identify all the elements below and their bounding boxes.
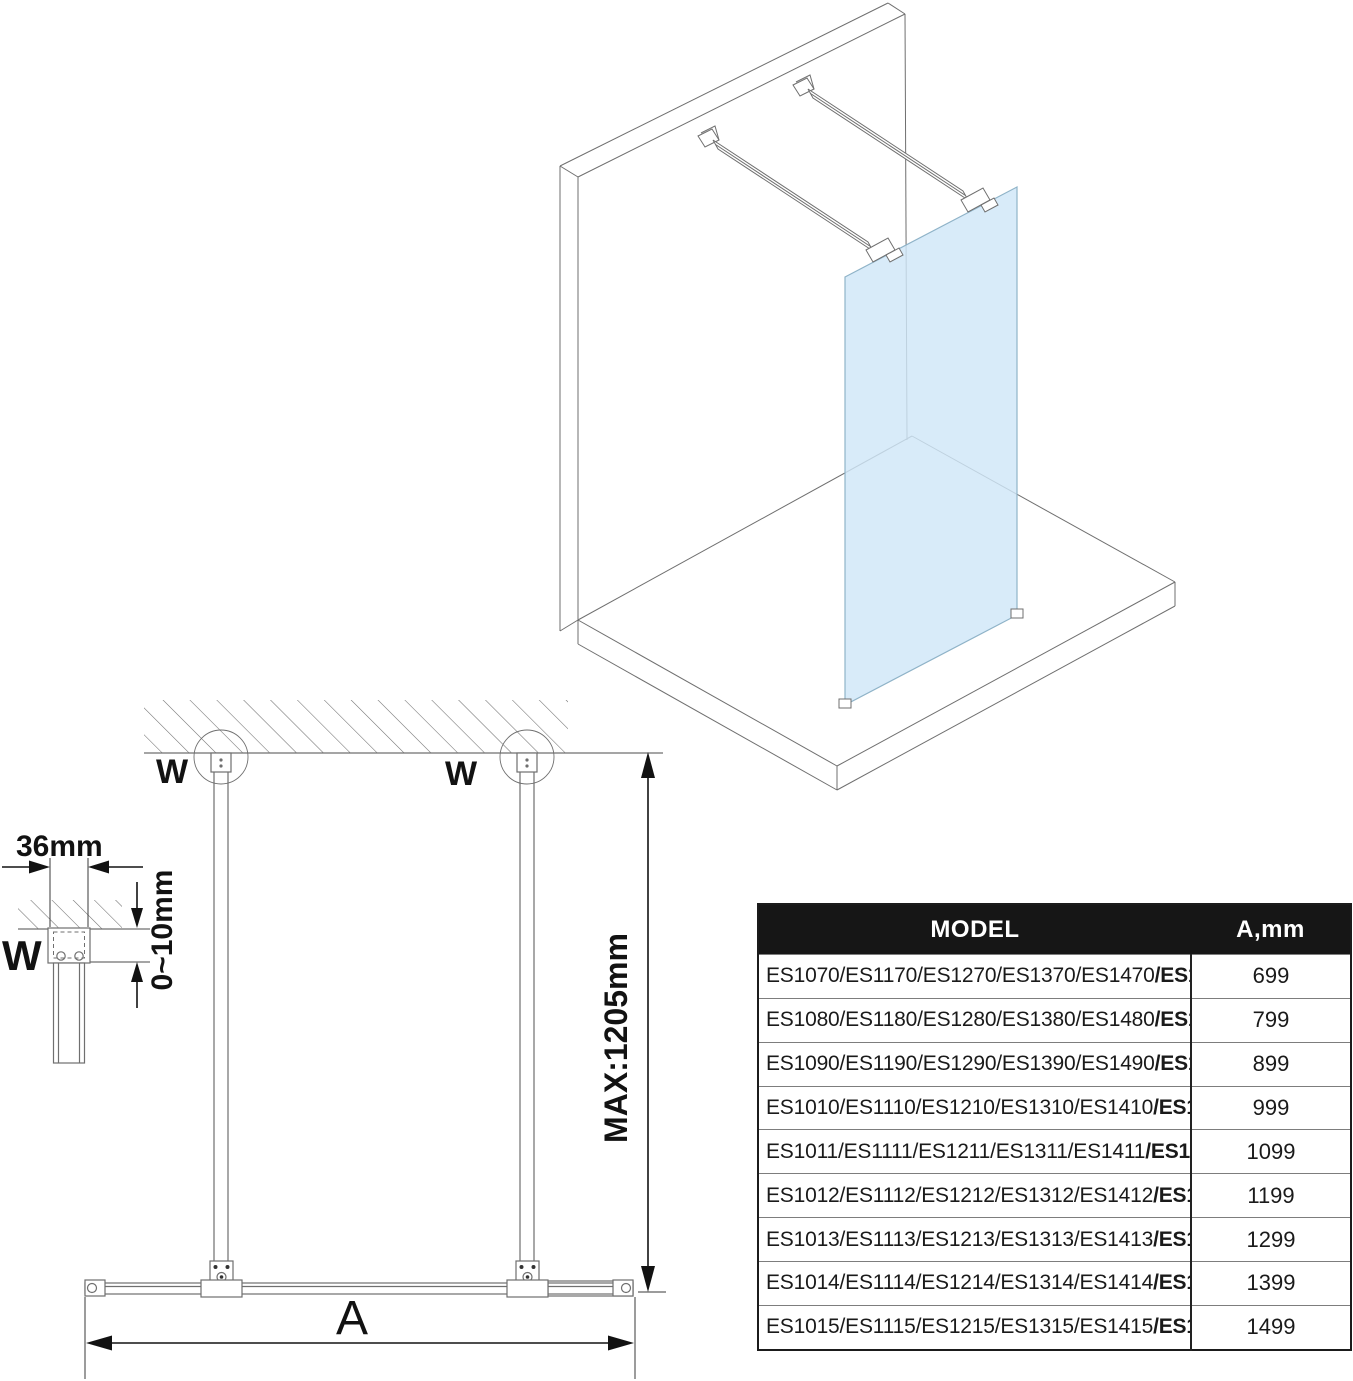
model-code-bold: /ES1511 [1145, 1140, 1191, 1163]
a-value: 999 [1191, 1086, 1351, 1130]
model-code-bold: /ES1515 [1153, 1315, 1191, 1338]
dimension-max-label: MAX:1205mm [598, 933, 634, 1143]
dimension-a: A [85, 1292, 635, 1379]
table-header-row: MODEL A,mm [758, 904, 1351, 955]
isometric-view [560, 3, 1175, 790]
a-value: 1199 [1191, 1174, 1351, 1218]
a-value: 699 [1191, 955, 1351, 999]
model-codes: ES1013/ES1113/ES1213/ES1313/ES1413 [766, 1228, 1153, 1251]
dimension-gap-label: 0~10mm [146, 870, 179, 991]
detail-ref-w-left: W [156, 753, 189, 791]
table-row: ES1090/ES1190/ES1290/ES1390/ES1490/ES159… [758, 1042, 1351, 1086]
table-row: ES1013/ES1113/ES1213/ES1313/ES1413/ES151… [758, 1218, 1351, 1262]
plan-wall [144, 700, 663, 753]
model-code-bold: /ES1580 [1155, 1008, 1191, 1031]
iso-support-bar-near [698, 126, 873, 251]
table-row: ES1015/ES1115/ES1215/ES1315/ES1415/ES151… [758, 1305, 1351, 1350]
model-codes: ES1015/ES1115/ES1215/ES1315/ES1415 [766, 1315, 1153, 1338]
model-codes: ES1080/ES1180/ES1280/ES1380/ES1480 [766, 1008, 1155, 1031]
iso-glass-panel [845, 187, 1017, 705]
table-row: ES1011/ES1111/ES1211/ES1311/ES1411/ES151… [758, 1130, 1351, 1174]
detail-w-label: W [2, 932, 42, 979]
model-code-bold: /ES1512 [1153, 1184, 1191, 1207]
model-code-bold: /ES1570 [1155, 964, 1191, 987]
dimension-max-length: MAX:1205mm [598, 752, 666, 1292]
model-spec-table: MODEL A,mm ES1070/ES1170/ES1270/ES1370/E… [757, 903, 1350, 1351]
table-row: ES1010/ES1110/ES1210/ES1310/ES1410/ES151… [758, 1086, 1351, 1130]
table-row: ES1014/ES1114/ES1214/ES1314/ES1414/ES151… [758, 1262, 1351, 1306]
detail-view-w: 36mm 0~10mm W [2, 830, 179, 1063]
detail-wall-hatch [18, 900, 122, 929]
table-row: ES1012/ES1112/ES1212/ES1312/ES1412/ES151… [758, 1174, 1351, 1218]
dimension-36mm-label: 36mm [16, 830, 103, 863]
a-value: 1399 [1191, 1262, 1351, 1306]
plan-support-bar-left [194, 730, 248, 1282]
column-header-a-mm: A,mm [1191, 904, 1351, 955]
model-code-bold: /ES1513 [1153, 1228, 1191, 1251]
model-codes: ES1014/ES1114/ES1214/ES1314/ES1414 [766, 1271, 1153, 1294]
model-codes: ES1070/ES1170/ES1270/ES1370/ES1470 [766, 964, 1155, 987]
detail-ref-w-right: W [445, 755, 478, 793]
model-code-bold: /ES1510 [1153, 1096, 1191, 1119]
model-code-bold: /ES1514 [1153, 1271, 1191, 1294]
a-value: 799 [1191, 998, 1351, 1042]
page: A MAX:1205mm W W [0, 0, 1353, 1381]
a-value: 1299 [1191, 1218, 1351, 1262]
a-value: 1499 [1191, 1305, 1351, 1350]
column-header-model: MODEL [758, 904, 1191, 955]
model-code-bold: /ES1590 [1155, 1052, 1191, 1075]
a-value: 899 [1191, 1042, 1351, 1086]
table-row: ES1080/ES1180/ES1280/ES1380/ES1480/ES158… [758, 998, 1351, 1042]
a-value: 1099 [1191, 1130, 1351, 1174]
table-row: ES1070/ES1170/ES1270/ES1370/ES1470/ES157… [758, 955, 1351, 999]
model-codes: ES1010/ES1110/ES1210/ES1310/ES1410 [766, 1096, 1153, 1119]
dimension-a-label: A [336, 1292, 368, 1345]
iso-support-bar-far [793, 75, 968, 200]
model-codes: ES1011/ES1111/ES1211/ES1311/ES1411 [766, 1140, 1145, 1163]
plan-support-bar-right [500, 730, 554, 1282]
model-codes: ES1012/ES1112/ES1212/ES1312/ES1412 [766, 1184, 1153, 1207]
dimension-gap: 0~10mm [131, 870, 179, 1008]
model-codes: ES1090/ES1190/ES1290/ES1390/ES1490 [766, 1052, 1155, 1075]
